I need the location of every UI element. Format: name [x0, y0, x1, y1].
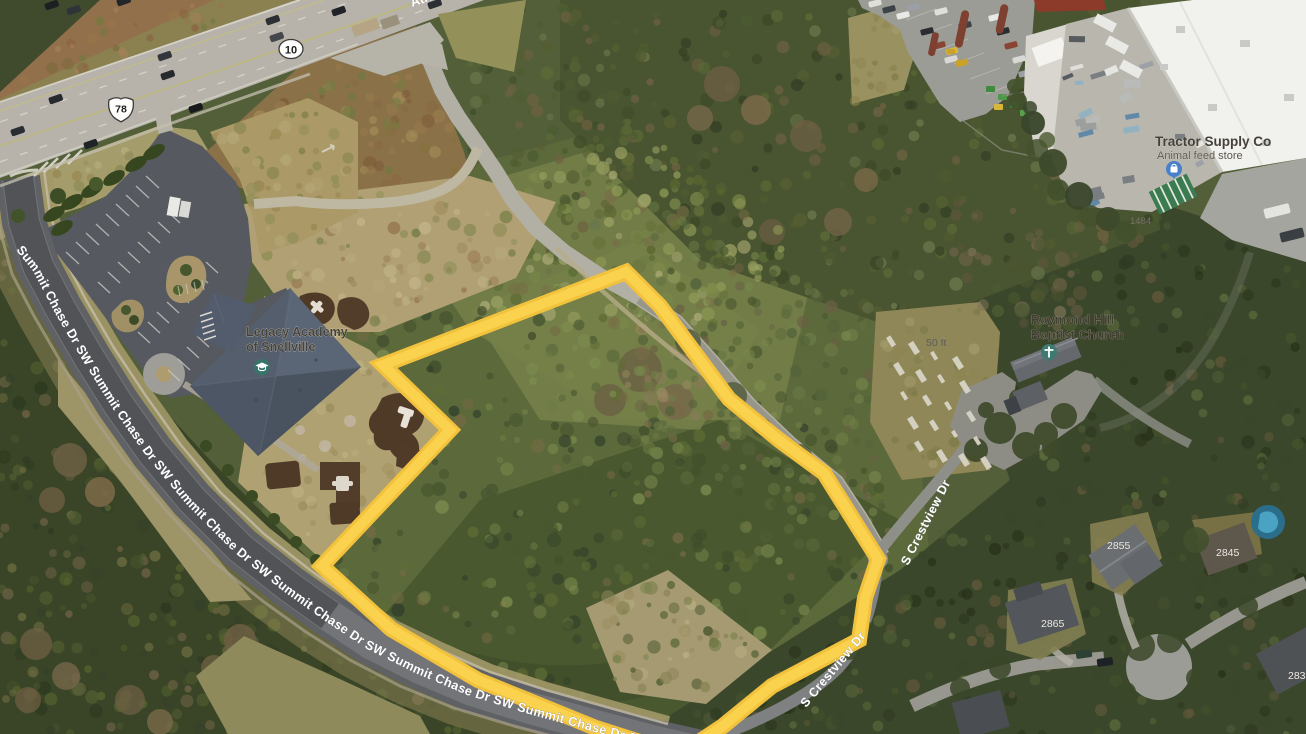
svg-text:Raymond Hill: Raymond Hill	[1031, 312, 1114, 327]
svg-text:of Snellville: of Snellville	[246, 340, 316, 354]
svg-text:10: 10	[285, 45, 297, 57]
svg-text:2845: 2845	[1216, 547, 1240, 559]
svg-text:78: 78	[115, 104, 127, 116]
svg-text:Tractor Supply Co: Tractor Supply Co	[1155, 134, 1271, 149]
svg-text:50 ft: 50 ft	[926, 337, 947, 349]
svg-text:Animal feed store: Animal feed store	[1157, 150, 1243, 162]
svg-text:Baptist Church: Baptist Church	[1031, 327, 1124, 342]
svg-text:2835: 2835	[1288, 670, 1306, 682]
svg-text:2855: 2855	[1107, 540, 1131, 552]
svg-text:2865: 2865	[1041, 618, 1065, 630]
svg-text:1484: 1484	[1130, 216, 1151, 227]
svg-text:Legacy Academy: Legacy Academy	[246, 325, 348, 339]
